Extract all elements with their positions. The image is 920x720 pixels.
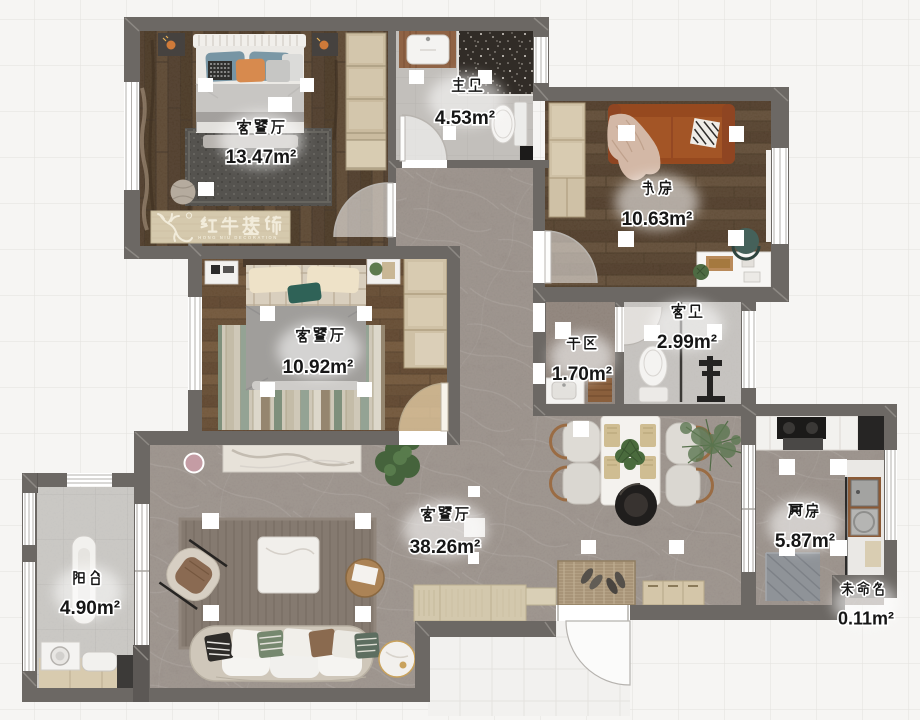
svg-text:13.47m²: 13.47m²	[226, 147, 297, 168]
svg-text:2.99m²: 2.99m²	[657, 332, 717, 353]
svg-text:0.11m²: 0.11m²	[838, 609, 894, 629]
svg-text:10.92m²: 10.92m²	[283, 357, 354, 378]
svg-text:HONG NIU DECORATION: HONG NIU DECORATION	[198, 235, 278, 240]
svg-text:5.87m²: 5.87m²	[775, 531, 835, 552]
svg-text:4.53m²: 4.53m²	[435, 108, 495, 129]
svg-text:38.26m²: 38.26m²	[410, 537, 481, 558]
svg-text:10.63m²: 10.63m²	[622, 209, 693, 230]
svg-text:4.90m²: 4.90m²	[60, 598, 120, 619]
svg-text:1.70m²: 1.70m²	[552, 364, 612, 385]
